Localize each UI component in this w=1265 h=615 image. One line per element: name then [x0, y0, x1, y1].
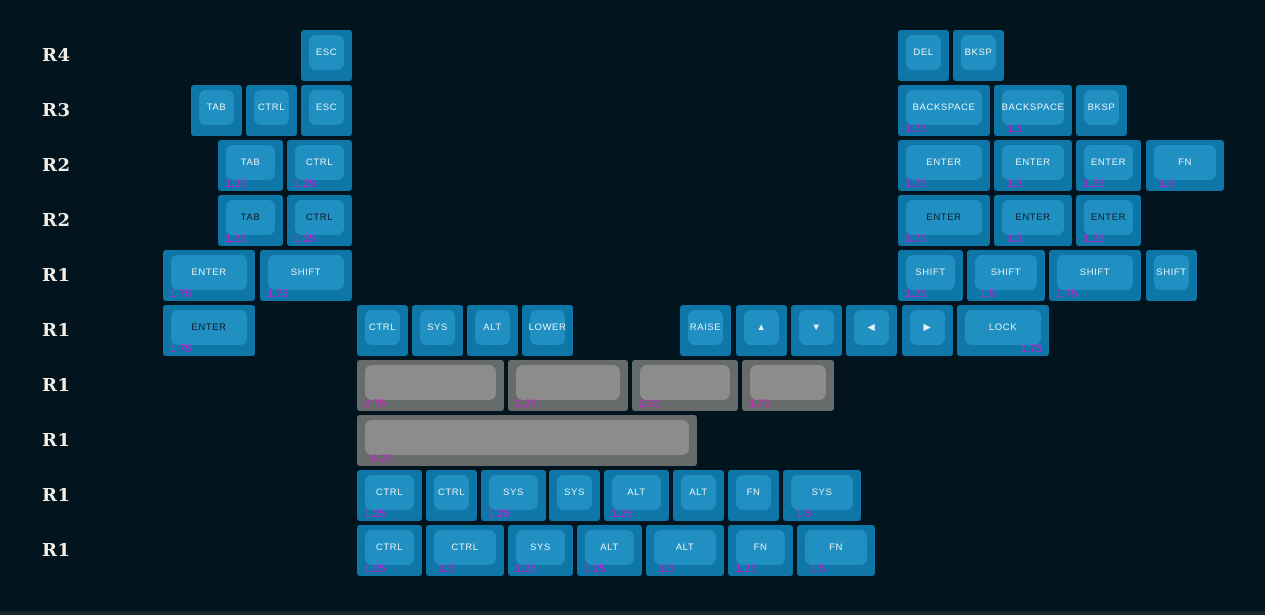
- keycap-bksp[interactable]: BKSP: [953, 30, 1004, 81]
- keycap-spacebar[interactable]: 2.75: [357, 360, 504, 411]
- bottom-edge-bar: [0, 611, 1265, 615]
- keycap-shift[interactable]: SHIFT1.75: [260, 250, 352, 301]
- keycap-legend: ALT: [689, 488, 708, 498]
- keycap-arrow-right[interactable]: ▶: [902, 305, 953, 356]
- keycap-top-surface: LOWER: [530, 310, 565, 345]
- keycap-arrow-left[interactable]: ◀: [846, 305, 897, 356]
- keycap-legend: SHIFT: [291, 268, 321, 278]
- keycap-size-label: 1.25: [1083, 178, 1104, 191]
- keycap-size-label: 1.25: [294, 178, 315, 191]
- keycap-legend: DEL: [913, 48, 933, 58]
- keycap-top-surface: ▶: [910, 310, 945, 345]
- keycap-top-surface: [365, 365, 496, 400]
- row-label: R2: [42, 195, 86, 246]
- keycap-legend: FN: [747, 488, 761, 498]
- keycap-sys[interactable]: SYS: [412, 305, 463, 356]
- keycap-legend: BKSP: [1088, 103, 1116, 113]
- keycap-top-surface: BACKSPACE: [906, 90, 982, 125]
- keycap-backspace[interactable]: BACKSPACE1.75: [898, 85, 990, 136]
- keycap-top-surface: [516, 365, 620, 400]
- keycap-legend: CTRL: [306, 213, 333, 223]
- keycap-size-label: 1.25: [735, 563, 756, 576]
- keycap-sys[interactable]: SYS: [549, 470, 600, 521]
- keycap-legend: ▼: [811, 323, 821, 333]
- keycap-legend: ENTER: [191, 268, 226, 278]
- keycap-enter[interactable]: ENTER1.5: [994, 195, 1072, 246]
- keycap-enter[interactable]: ENTER1.75: [898, 140, 990, 191]
- keycap-shift[interactable]: SHIFT1.25: [898, 250, 963, 301]
- keycap-size-label: 2.00: [639, 398, 660, 411]
- keycap-top-surface: SHIFT: [268, 255, 344, 290]
- keycap-del[interactable]: DEL: [898, 30, 949, 81]
- keycap-size-label: 1.75: [1021, 343, 1042, 356]
- keycap-tab[interactable]: TAB1.25: [218, 140, 283, 191]
- keycap-size-label: 6.25: [371, 453, 392, 466]
- keycap-legend: FN: [829, 543, 843, 553]
- keycap-shift[interactable]: SHIFT: [1146, 250, 1197, 301]
- keycap-top-surface: FN: [736, 530, 785, 565]
- keycap-arrow-down[interactable]: ▼: [791, 305, 842, 356]
- keycap-enter[interactable]: ENTER1.75: [163, 250, 255, 301]
- row-label: R1: [42, 415, 86, 466]
- keycap-legend: SYS: [812, 488, 833, 498]
- keycap-size-label: 1.5: [810, 563, 825, 576]
- keycap-top-surface: BKSP: [961, 35, 996, 70]
- keycap-legend: CTRL: [451, 543, 478, 553]
- keycap-legend: ENTER: [1015, 158, 1050, 168]
- keycap-size-label: 1.75: [905, 178, 926, 191]
- keycap-legend: BKSP: [965, 48, 993, 58]
- keycap-size-label: 1.25: [905, 288, 926, 301]
- keycap-spacebar[interactable]: 6.25: [357, 415, 697, 466]
- keycap-top-surface: FN: [1154, 145, 1216, 180]
- keycap-enter[interactable]: ENTER1.25: [1076, 195, 1141, 246]
- keycap-shift[interactable]: SHIFT1.75: [1049, 250, 1141, 301]
- keycap-top-surface: ALT: [654, 530, 716, 565]
- keycap-size-label: 1.75: [905, 233, 926, 246]
- keycap-enter[interactable]: ENTER1.25: [1076, 140, 1141, 191]
- keycap-spacebar[interactable]: 1.75: [742, 360, 834, 411]
- keycap-top-surface: CTRL: [365, 530, 414, 565]
- row-label: R1: [42, 305, 86, 356]
- keycap-lock[interactable]: LOCK1.75: [957, 305, 1049, 356]
- keycap-legend: ◀: [868, 323, 876, 333]
- keycap-top-surface: LOCK: [965, 310, 1041, 345]
- keycap-top-surface: SYS: [420, 310, 455, 345]
- keycap-size-label: 1.5: [1007, 233, 1022, 246]
- keycap-top-surface: SYS: [489, 475, 538, 510]
- keycap-size-label: 1.25: [225, 178, 246, 191]
- keycap-size-label: 1.75: [905, 123, 926, 136]
- keycap-top-surface: CTRL: [254, 90, 289, 125]
- keycap-legend: CTRL: [258, 103, 285, 113]
- keycap-spacebar[interactable]: 2.00: [632, 360, 738, 411]
- keycap-legend: SYS: [530, 543, 551, 553]
- keycap-top-surface: ALT: [681, 475, 716, 510]
- keycap-tab[interactable]: TAB1.25: [218, 195, 283, 246]
- keycap-size-label: 1.25: [364, 508, 385, 521]
- keycap-top-surface: ENTER: [171, 255, 247, 290]
- keycap-top-surface: ▲: [744, 310, 779, 345]
- keycap-esc[interactable]: ESC: [301, 85, 352, 136]
- keycap-top-surface: ESC: [309, 35, 344, 70]
- keycap-raise[interactable]: RAISE: [680, 305, 731, 356]
- keycap-size-label: 1.25: [225, 233, 246, 246]
- row-label: R1: [42, 470, 86, 521]
- keycap-legend: ▲: [756, 323, 766, 333]
- keycap-legend: CTRL: [438, 488, 465, 498]
- keycap-legend: ▶: [924, 323, 932, 333]
- keycap-legend: ENTER: [191, 323, 226, 333]
- keycap-size-label: 1.75: [1056, 288, 1077, 301]
- keycap-legend: TAB: [207, 103, 227, 113]
- keycap-top-surface: SHIFT: [1154, 255, 1189, 290]
- keycap-fn[interactable]: FN1.25: [728, 525, 793, 576]
- keycap-size-label: 1.25: [364, 563, 385, 576]
- keycap-legend: ESC: [316, 48, 337, 58]
- keycap-legend: CTRL: [376, 488, 403, 498]
- keycap-legend: ENTER: [926, 213, 961, 223]
- keycap-size-label: 1.5: [1007, 123, 1022, 136]
- keycap-alt[interactable]: ALT: [673, 470, 724, 521]
- keycap-size-label: 1.25: [488, 508, 509, 521]
- keycap-legend: ALT: [483, 323, 502, 333]
- keycap-lower[interactable]: LOWER: [522, 305, 573, 356]
- keycap-legend: ALT: [676, 543, 695, 553]
- keycap-top-surface: ALT: [612, 475, 661, 510]
- keycap-top-surface: TAB: [199, 90, 234, 125]
- keycap-legend: TAB: [241, 158, 261, 168]
- keycap-legend: BACKSPACE: [913, 103, 976, 113]
- keycap-enter[interactable]: ENTER1.5: [994, 140, 1072, 191]
- keycap-ctrl[interactable]: CTRL1.25: [287, 140, 352, 191]
- keycap-fn[interactable]: FN: [728, 470, 779, 521]
- keycap-top-surface: [640, 365, 730, 400]
- keycap-top-surface: [365, 420, 689, 455]
- keycap-top-surface: ENTER: [171, 310, 247, 345]
- keycap-legend: SHIFT: [1156, 268, 1186, 278]
- keycap-legend: SHIFT: [1080, 268, 1110, 278]
- keycap-sys[interactable]: SYS1.25: [481, 470, 546, 521]
- keycap-alt[interactable]: ALT: [467, 305, 518, 356]
- row-label: R4: [42, 30, 86, 81]
- keycap-top-surface: CTRL: [365, 475, 414, 510]
- keycap-layout-stage: R4R3R2R2R1R1R1R1R1R1ESCDELBKSPTABCTRLESC…: [0, 0, 1265, 615]
- keycap-legend: ENTER: [926, 158, 961, 168]
- keycap-fn[interactable]: FN1.5: [797, 525, 875, 576]
- keycap-legend: LOWER: [529, 323, 567, 333]
- keycap-top-surface: [750, 365, 826, 400]
- keycap-ctrl[interactable]: CTRL1.25: [287, 195, 352, 246]
- keycap-legend: CTRL: [376, 543, 403, 553]
- keycap-top-surface: SHIFT: [1057, 255, 1133, 290]
- keycap-top-surface: CTRL: [434, 475, 469, 510]
- keycap-top-surface: RAISE: [688, 310, 723, 345]
- keycap-ctrl[interactable]: CTRL1.5: [426, 525, 504, 576]
- keycap-top-surface: FN: [805, 530, 867, 565]
- keycap-top-surface: DEL: [906, 35, 941, 70]
- keycap-size-label: 1.5: [659, 563, 674, 576]
- keycap-sys[interactable]: SYS1.5: [783, 470, 861, 521]
- keycap-top-surface: ▼: [799, 310, 834, 345]
- keycap-legend: CTRL: [306, 158, 333, 168]
- keycap-top-surface: CTRL: [365, 310, 400, 345]
- keycap-size-label: 1.25: [515, 563, 536, 576]
- keycap-esc[interactable]: ESC: [301, 30, 352, 81]
- keycap-ctrl[interactable]: CTRL1.25: [357, 470, 422, 521]
- keycap-top-surface: SYS: [516, 530, 565, 565]
- keycap-top-surface: SYS: [557, 475, 592, 510]
- keycap-bksp[interactable]: BKSP: [1076, 85, 1127, 136]
- keycap-size-label: 1.25: [611, 508, 632, 521]
- keycap-legend: SYS: [564, 488, 585, 498]
- keycap-top-surface: ESC: [309, 90, 344, 125]
- keycap-ctrl[interactable]: CTRL: [246, 85, 297, 136]
- keycap-legend: FN: [1178, 158, 1192, 168]
- keycap-legend: ENTER: [1091, 158, 1126, 168]
- row-label: R1: [42, 250, 86, 301]
- keycap-arrow-up[interactable]: ▲: [736, 305, 787, 356]
- keycap-legend: ALT: [627, 488, 646, 498]
- keycap-size-label: 1.5: [980, 288, 995, 301]
- keycap-size-label: 1.25: [294, 233, 315, 246]
- keycap-legend: LOCK: [989, 323, 1017, 333]
- keycap-legend: BACKSPACE: [1002, 103, 1065, 113]
- keycap-size-label: 1.75: [749, 398, 770, 411]
- keycap-legend: SYS: [427, 323, 448, 333]
- keycap-enter[interactable]: ENTER1.75: [898, 195, 990, 246]
- keycap-top-surface: ENTER: [906, 200, 982, 235]
- keycap-top-surface: ENTER: [906, 145, 982, 180]
- keycap-size-label: 1.5: [796, 508, 811, 521]
- keycap-legend: ENTER: [1091, 213, 1126, 223]
- keycap-ctrl[interactable]: CTRL: [357, 305, 408, 356]
- keycap-tab[interactable]: TAB: [191, 85, 242, 136]
- keycap-top-surface: SHIFT: [906, 255, 955, 290]
- keycap-sys[interactable]: SYS1.25: [508, 525, 573, 576]
- keycap-alt[interactable]: ALT1.25: [604, 470, 669, 521]
- keycap-legend: SHIFT: [915, 268, 945, 278]
- keycap-top-surface: ALT: [475, 310, 510, 345]
- keycap-legend: ENTER: [1015, 213, 1050, 223]
- keycap-top-surface: ENTER: [1084, 200, 1133, 235]
- keycap-size-label: 1.5: [1007, 178, 1022, 191]
- keycap-ctrl[interactable]: CTRL: [426, 470, 477, 521]
- keycap-legend: ALT: [600, 543, 619, 553]
- keycap-size-label: 2.25: [515, 398, 536, 411]
- keycap-spacebar[interactable]: 2.25: [508, 360, 628, 411]
- keycap-top-surface: ◀: [854, 310, 889, 345]
- keycap-top-surface: BKSP: [1084, 90, 1119, 125]
- keycap-size-label: 1.75: [170, 288, 191, 301]
- row-label: R3: [42, 85, 86, 136]
- keycap-legend: TAB: [241, 213, 261, 223]
- keycap-size-label: 1.75: [267, 288, 288, 301]
- keycap-size-label: 1.75: [170, 343, 191, 356]
- row-label: R1: [42, 360, 86, 411]
- keycap-ctrl[interactable]: CTRL1.25: [357, 525, 422, 576]
- keycap-size-label: 1.25: [584, 563, 605, 576]
- row-label: R1: [42, 525, 86, 576]
- keycap-legend: RAISE: [690, 323, 722, 333]
- keycap-enter[interactable]: ENTER1.75: [163, 305, 255, 356]
- keycap-fn[interactable]: FN1.5: [1146, 140, 1224, 191]
- keycap-legend: ESC: [316, 103, 337, 113]
- keycap-backspace[interactable]: BACKSPACE1.5: [994, 85, 1072, 136]
- keycap-top-surface: ENTER: [1002, 145, 1064, 180]
- keycap-top-surface: ENTER: [1084, 145, 1133, 180]
- keycap-legend: SYS: [503, 488, 524, 498]
- keycap-top-surface: CTRL: [434, 530, 496, 565]
- keycap-size-label: 1.25: [1083, 233, 1104, 246]
- keycap-legend: CTRL: [369, 323, 396, 333]
- keycap-top-surface: SYS: [791, 475, 853, 510]
- keycap-top-surface: CTRL: [295, 200, 344, 235]
- keycap-size-label: 1.5: [1159, 178, 1174, 191]
- keycap-top-surface: ALT: [585, 530, 634, 565]
- keycap-legend: FN: [754, 543, 768, 553]
- keycap-top-surface: FN: [736, 475, 771, 510]
- keycap-top-surface: TAB: [226, 145, 275, 180]
- keycap-legend: SHIFT: [991, 268, 1021, 278]
- keycap-top-surface: ENTER: [1002, 200, 1064, 235]
- keycap-size-label: 2.75: [364, 398, 385, 411]
- keycap-top-surface: BACKSPACE: [1002, 90, 1064, 125]
- keycap-alt[interactable]: ALT1.5: [646, 525, 724, 576]
- keycap-size-label: 1.5: [439, 563, 454, 576]
- keycap-top-surface: TAB: [226, 200, 275, 235]
- keycap-shift[interactable]: SHIFT1.5: [967, 250, 1045, 301]
- row-label: R2: [42, 140, 86, 191]
- keycap-alt[interactable]: ALT1.25: [577, 525, 642, 576]
- keycap-top-surface: CTRL: [295, 145, 344, 180]
- keycap-top-surface: SHIFT: [975, 255, 1037, 290]
